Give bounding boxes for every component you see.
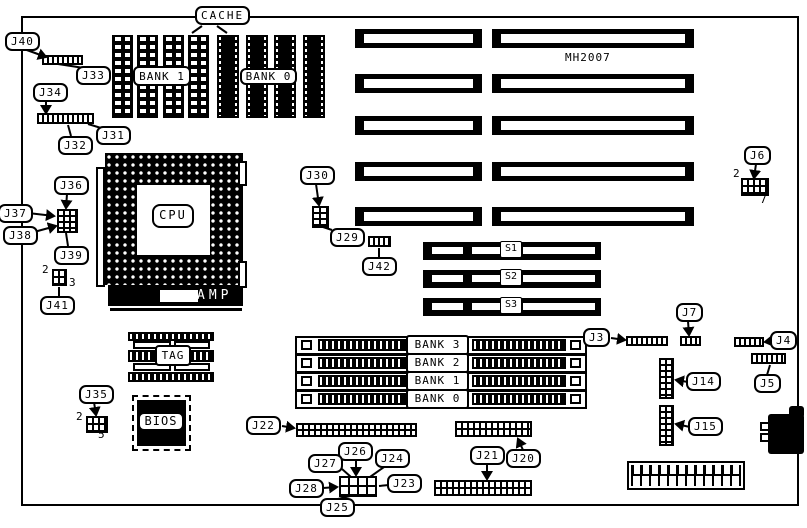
isa-slot-opening	[501, 34, 685, 43]
j34-label: J34	[33, 83, 68, 102]
simm-clip	[570, 340, 581, 350]
isa-slot-segment	[492, 162, 694, 181]
simm-contact-bar	[318, 393, 406, 405]
j22-connector	[296, 423, 417, 437]
j40-label: J40	[5, 32, 40, 51]
cache-chip	[303, 35, 325, 118]
j35-pin2-number: 2	[76, 410, 83, 423]
j6-pin2-number: 2	[733, 167, 740, 180]
j23-label: J23	[387, 474, 422, 493]
j24-label: J24	[375, 449, 410, 468]
cpu-retention-bar	[238, 261, 247, 288]
j20-label: J20	[506, 449, 541, 468]
j27-label: J27	[308, 454, 343, 473]
tag-chip-row	[128, 350, 156, 362]
j25-label: J25	[320, 498, 355, 517]
keyboard-connector-notch	[760, 433, 770, 442]
simm-contact-bar	[318, 339, 406, 351]
j14-label: J14	[686, 372, 721, 391]
simm-contact-bar	[318, 375, 406, 387]
j40-j33-connector	[42, 55, 83, 65]
simm-clip	[570, 394, 581, 404]
isa-slot-segment	[355, 116, 482, 135]
simm-contact-bar	[472, 357, 566, 369]
j5-label: J5	[754, 374, 781, 393]
cache-bank1-label: BANK 1	[133, 66, 191, 86]
isa-slot-opening	[501, 167, 685, 176]
j35-pin5-number: 5	[98, 428, 105, 441]
cache-chip	[188, 35, 209, 118]
bios-label: BIOS	[138, 412, 184, 431]
j5-connector	[751, 353, 786, 364]
isa-slot-segment	[355, 29, 482, 48]
slot-opening	[472, 275, 500, 282]
j26-label: J26	[338, 442, 373, 461]
simm-bank0-label: BANK 0	[406, 389, 469, 409]
j6-label: J6	[744, 146, 771, 165]
j41-label: J41	[40, 296, 75, 315]
j33-label: J33	[76, 66, 111, 85]
j41-pin2-number: 2	[42, 263, 49, 276]
isa-slot-segment	[492, 74, 694, 93]
isa-slot-opening	[364, 167, 473, 176]
isa-slot-opening	[501, 121, 685, 130]
isa-slot-segment	[355, 74, 482, 93]
isa-slot-segment	[355, 162, 482, 181]
j3-connector	[626, 336, 668, 346]
chipset-part-number: MH2007	[565, 51, 611, 64]
isa-slot-opening	[501, 79, 685, 88]
j39-label: J39	[54, 246, 89, 265]
slot-opening	[523, 247, 595, 254]
simm-contact-bar	[472, 375, 566, 387]
slot-opening	[472, 247, 500, 254]
j38-label: J38	[3, 226, 38, 245]
amp-socket-bar: AMP	[108, 285, 243, 306]
slot-s3-label: S3	[500, 297, 522, 314]
j6-pin7-number: 7	[760, 193, 767, 206]
cpu-retention-bar	[238, 161, 247, 186]
j30-jumper	[312, 206, 329, 228]
simm-contact-bar	[472, 393, 566, 405]
j36-label: J36	[54, 176, 89, 195]
cpu-label: CPU	[152, 204, 194, 228]
j15-label: J15	[688, 417, 723, 436]
keyboard-connector	[768, 414, 804, 454]
j7-label: J7	[676, 303, 703, 322]
slot-opening	[432, 275, 463, 282]
j21-label: J21	[470, 446, 505, 465]
simm-clip	[301, 358, 312, 368]
j15-header	[659, 405, 674, 446]
tag-label: TAG	[155, 345, 191, 366]
simm-clip	[301, 376, 312, 386]
slot-opening	[432, 303, 463, 310]
isa-slot-segment	[492, 116, 694, 135]
cpu-side-bar	[96, 167, 105, 287]
isa-slot-segment	[355, 207, 482, 226]
j34-j32-j31-connector	[37, 113, 94, 124]
isa-slot-opening	[364, 34, 473, 43]
isa-slot-opening	[364, 212, 473, 221]
j37-label: J37	[0, 204, 33, 223]
j31-label: J31	[96, 126, 131, 145]
power-connector	[627, 461, 745, 490]
motherboard-diagram: BANK 1 BANK 0 MH2007 CPU AMP S	[0, 0, 807, 528]
j14-header	[659, 358, 674, 399]
isa-slot-segment	[492, 207, 694, 226]
isa-slot-segment	[492, 29, 694, 48]
simm-clip	[570, 376, 581, 386]
keyboard-connector-notch	[760, 422, 770, 431]
isa-slot-opening	[364, 121, 473, 130]
slot-s2-label: S2	[500, 269, 522, 286]
tag-chip-row	[128, 372, 214, 382]
amp-bar-underline	[110, 308, 242, 311]
slot-opening	[523, 275, 595, 282]
j21-connector	[434, 480, 532, 496]
cache-chip	[112, 35, 133, 118]
j32-label: J32	[58, 136, 93, 155]
j28-label: J28	[289, 479, 324, 498]
j42-connector	[368, 236, 391, 247]
j20-connector	[455, 421, 532, 437]
j29-label: J29	[330, 228, 365, 247]
slot-opening	[523, 303, 595, 310]
j36-j39-jumper-block	[57, 209, 78, 233]
j7-jumper	[680, 336, 701, 346]
simm-clip	[301, 340, 312, 350]
amp-label: AMP	[197, 288, 232, 303]
j4-label: J4	[770, 331, 797, 350]
slot-s1-label: S1	[500, 241, 522, 258]
simm-bank1-label: BANK 1	[406, 371, 469, 391]
slot-opening	[472, 303, 500, 310]
j30-label: J30	[300, 166, 335, 185]
j22-label: J22	[246, 416, 281, 435]
tag-chip-row	[128, 332, 214, 341]
j35-jumper	[86, 416, 108, 433]
simm-contact-bar	[318, 357, 406, 369]
simm-clip	[301, 394, 312, 404]
cache-bank0-label: BANK 0	[240, 68, 297, 85]
isa-slot-opening	[501, 212, 685, 221]
simm-contact-bar	[472, 339, 566, 351]
cache-chip	[217, 35, 239, 118]
j4-connector	[734, 337, 764, 347]
cache-callout-label: CACHE	[195, 6, 250, 25]
amp-bar-window	[160, 290, 198, 302]
slot-opening	[432, 247, 463, 254]
j23-j28-jumper-block	[339, 476, 377, 497]
j41-jumper	[52, 269, 67, 286]
simm-bank3-label: BANK 3	[406, 335, 469, 355]
simm-bank2-label: BANK 2	[406, 353, 469, 373]
j41-pin3-number: 3	[69, 276, 76, 289]
j35-label: J35	[79, 385, 114, 404]
simm-clip	[570, 358, 581, 368]
j3-label: J3	[583, 328, 610, 347]
isa-slot-opening	[364, 79, 473, 88]
j42-label: J42	[362, 257, 397, 276]
